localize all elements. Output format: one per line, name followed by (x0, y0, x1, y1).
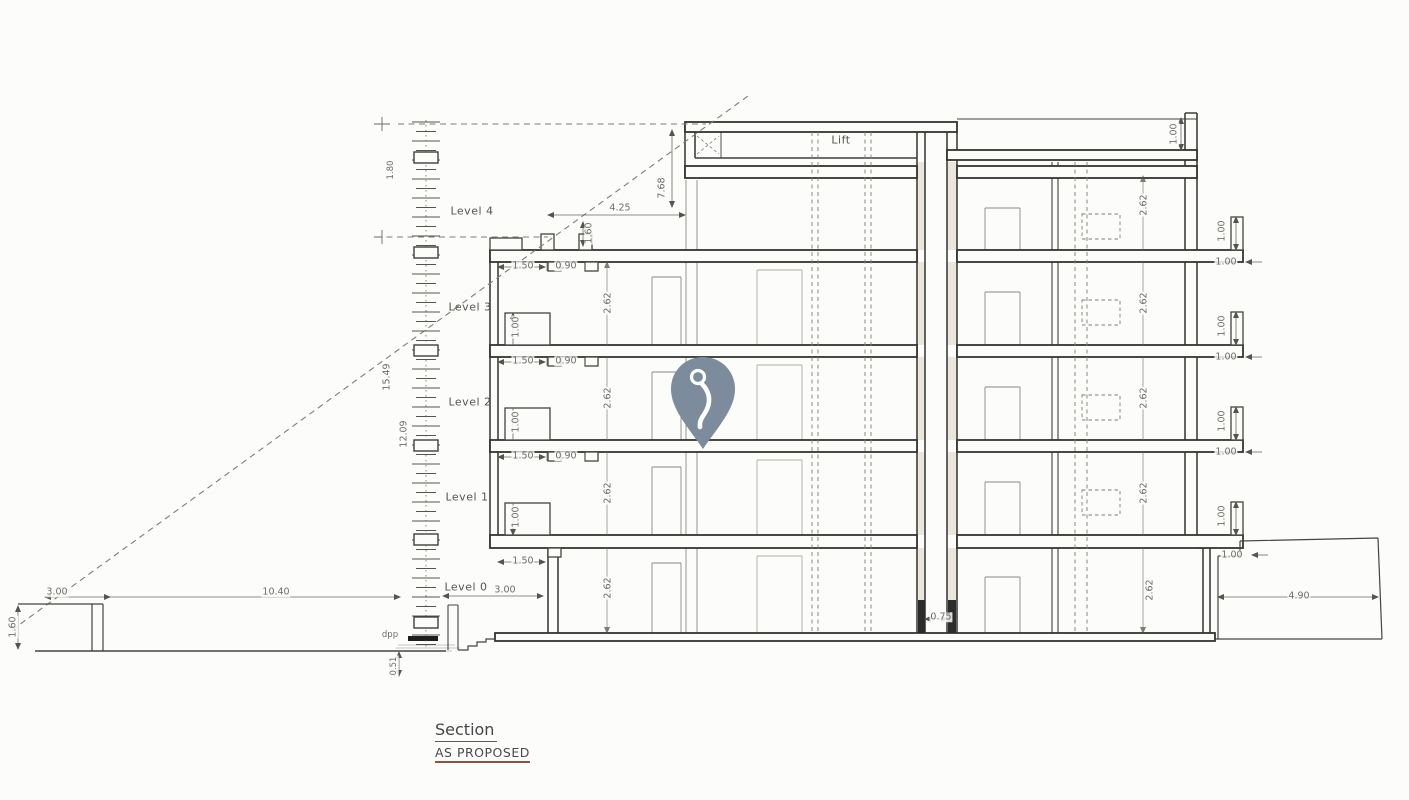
dim-room-height: 2.62 (1139, 193, 1149, 216)
dim-room-height: 2.62 (1139, 481, 1149, 504)
dim-parapet-height: 1.00 (1217, 409, 1227, 432)
level-0-label: Level 0 (443, 582, 488, 593)
dpp-label: dpp (381, 631, 399, 640)
dim-room-height: 2.62 (603, 386, 613, 409)
sight-line (12, 96, 748, 630)
dpc-bar (408, 636, 438, 641)
drawing-title: Section (435, 720, 497, 742)
lift-shaft-wall-fill (917, 162, 957, 600)
section-walls (490, 113, 1210, 639)
dim-roof-parapet: 1.00 (1169, 122, 1179, 145)
dim-top-height: 1.80 (387, 160, 396, 181)
level-2-label: Level 2 (447, 397, 492, 408)
dim-balcony-width: 1.00 (1214, 447, 1237, 457)
dim-room-height: 2.62 (1139, 291, 1149, 314)
dim-total-height: 15.49 (382, 362, 392, 391)
dim-site-depth: 10.40 (261, 587, 290, 597)
drawing-title-block: Section AS PROPOSED (435, 720, 530, 763)
level-1-label: Level 1 (444, 492, 489, 503)
dim-boundary-wall-height: 1.60 (8, 615, 18, 638)
dim-balcony-depth: 1.50 (511, 556, 534, 566)
dim-parapet-height: 1.00 (511, 315, 521, 338)
dim-step-height: 1.60 (584, 221, 594, 244)
dim-roof-setback: 4.25 (608, 203, 631, 213)
height-ladder (412, 120, 440, 650)
dim-rear-terrace-width: 4.90 (1287, 591, 1310, 601)
dim-overrun-height: 7.68 (657, 176, 667, 199)
dim-parapet-height: 1.00 (1217, 314, 1227, 337)
dim-room-height: 2.62 (603, 291, 613, 314)
dim-room-height: 2.62 (1139, 386, 1149, 409)
dim-balcony-depth: 1.50 (511, 261, 534, 271)
dim-door-width: 0.90 (554, 451, 577, 461)
section-drawing-linework (0, 0, 1409, 800)
dim-door-width: 0.90 (554, 356, 577, 366)
level-4-label: Level 4 (449, 206, 494, 217)
dim-balcony-depth: 1.50 (511, 356, 534, 366)
dim-balcony-width: 1.00 (1220, 550, 1243, 560)
dim-front-garden-width: 3.00 (45, 587, 68, 597)
dim-foundation-depth: 0.51 (390, 656, 399, 677)
dim-balcony-depth: 1.50 (511, 451, 534, 461)
dim-upper-height: 12.09 (399, 419, 409, 448)
blueprint-canvas: Level 4 Level 3 Level 2 Level 1 Level 0 … (0, 0, 1409, 800)
dim-room-height: 2.62 (1145, 578, 1155, 601)
dim-door-width: 0.90 (554, 261, 577, 271)
dim-parapet-height: 1.00 (1217, 219, 1227, 242)
level-3-label: Level 3 (447, 302, 492, 313)
dim-parapet-height: 1.00 (511, 410, 521, 433)
lift-label: Lift (830, 135, 851, 146)
dim-ground-setback: 3.00 (493, 585, 516, 595)
drawing-status: AS PROPOSED (435, 745, 530, 763)
dim-lift-pit-width: 0.75 (929, 612, 952, 622)
dim-balcony-width: 1.00 (1214, 352, 1237, 362)
dim-room-height: 2.62 (603, 481, 613, 504)
dim-balcony-width: 1.00 (1214, 257, 1237, 267)
dim-room-height: 2.62 (603, 576, 613, 599)
dim-parapet-height: 1.00 (1217, 504, 1227, 527)
floor-slabs (490, 122, 1243, 641)
dim-parapet-height: 1.00 (511, 505, 521, 528)
